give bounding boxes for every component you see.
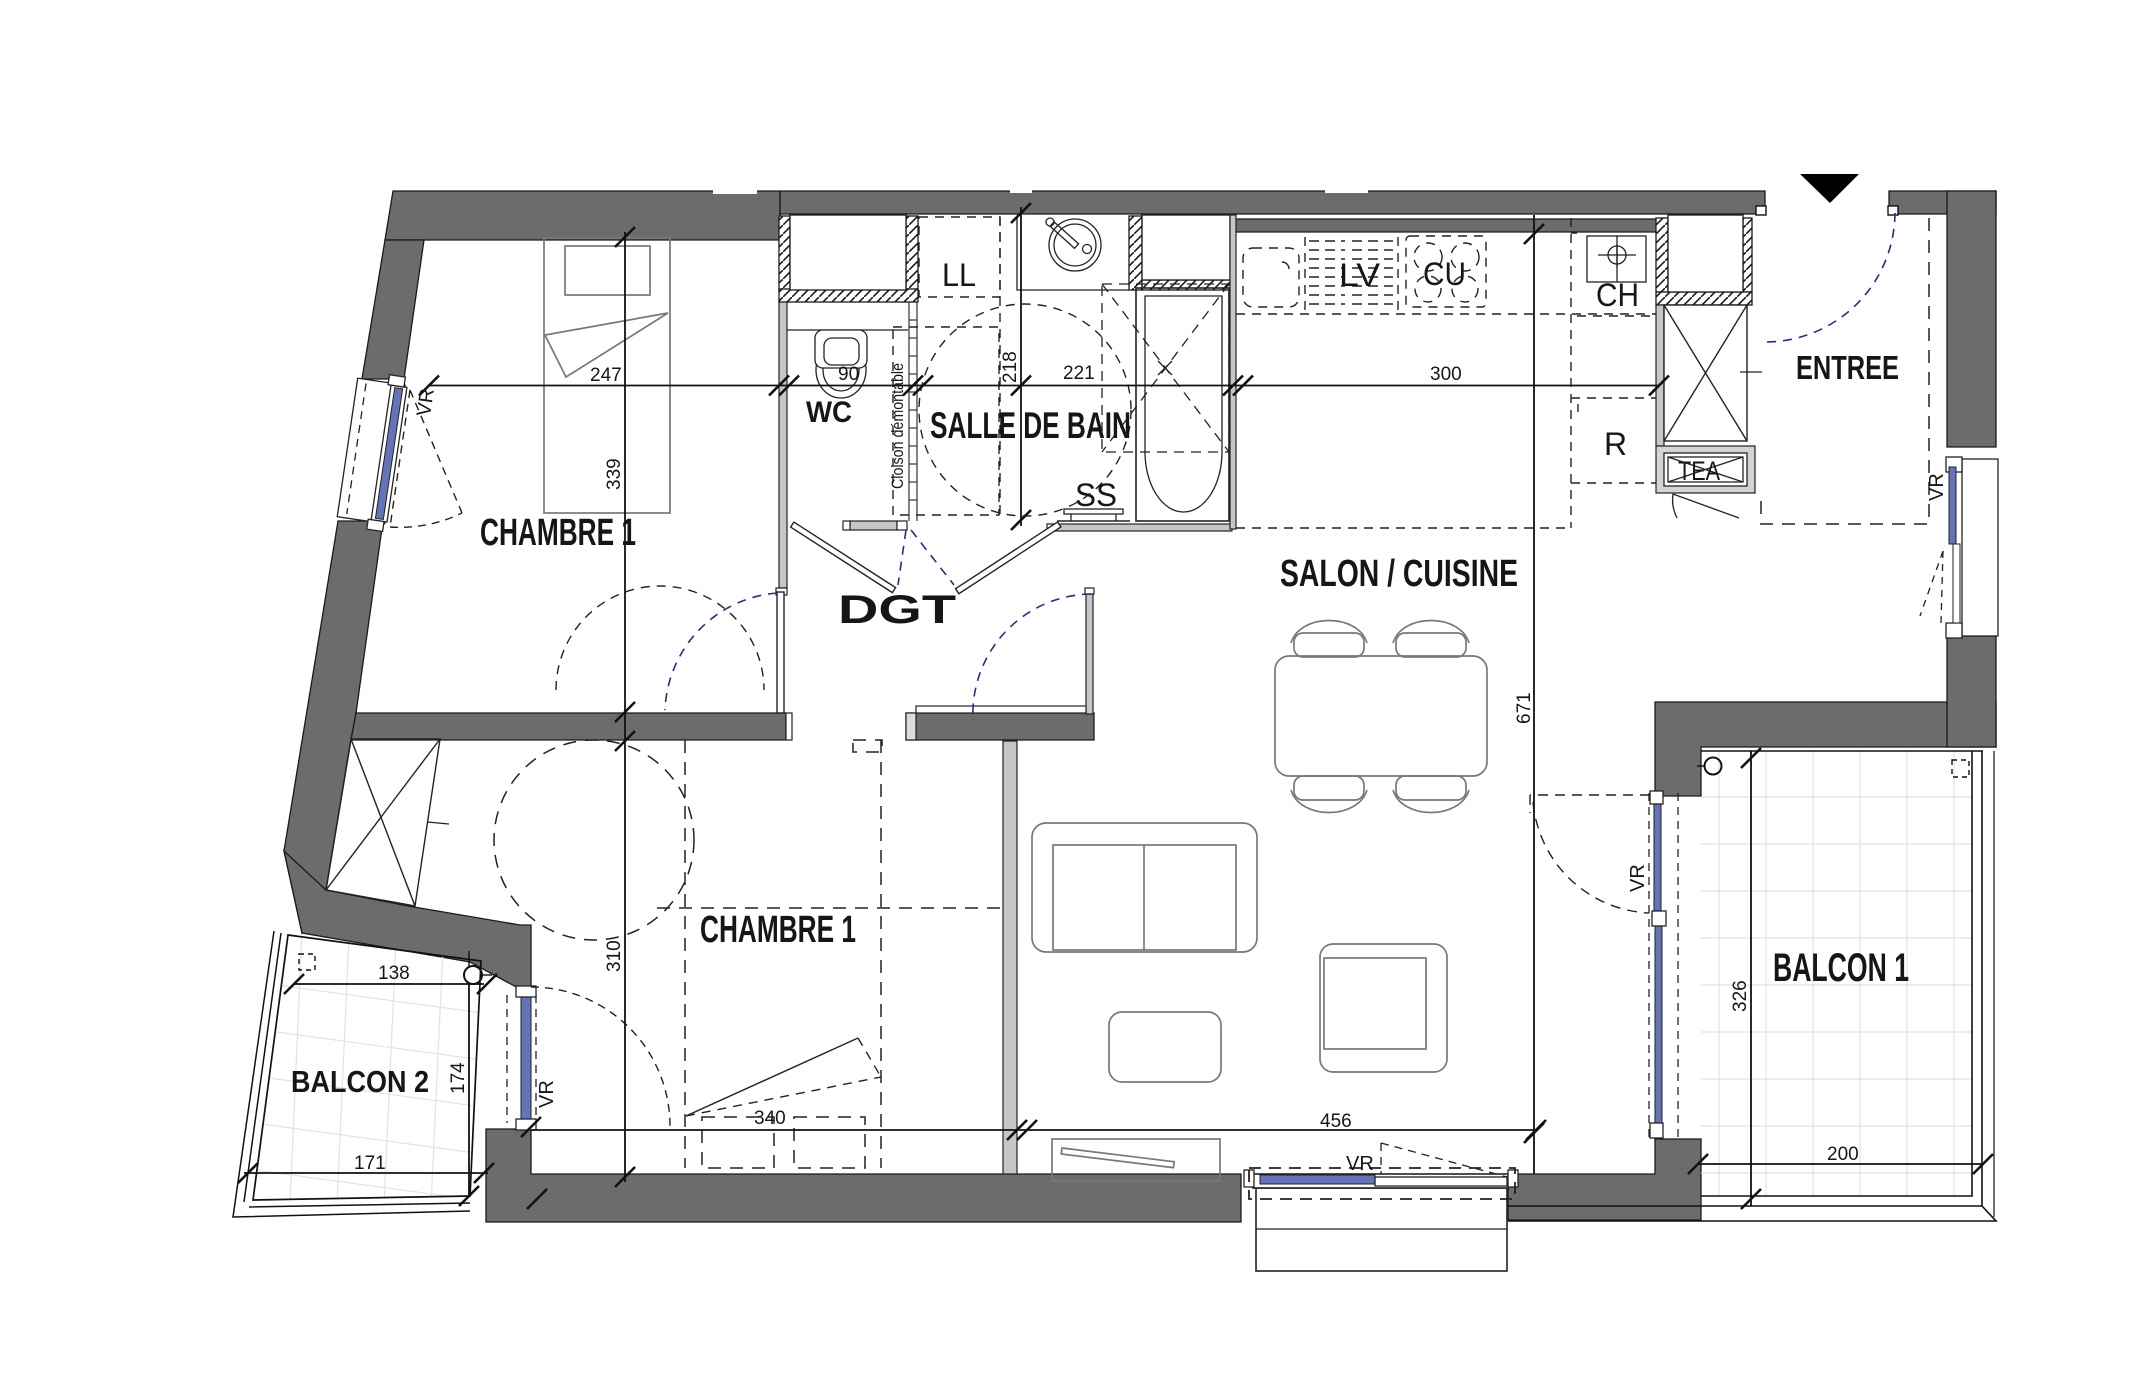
svg-text:CU: CU xyxy=(1423,256,1466,292)
svg-text:171: 171 xyxy=(354,1153,386,1174)
svg-text:LL: LL xyxy=(942,257,976,293)
svg-text:SS: SS xyxy=(1075,477,1117,513)
svg-text:340: 340 xyxy=(754,1108,786,1129)
svg-text:DGT: DGT xyxy=(838,588,956,632)
svg-text:BALCON 2: BALCON 2 xyxy=(291,1064,429,1099)
svg-text:221: 221 xyxy=(1063,363,1095,384)
svg-text:R: R xyxy=(1604,426,1627,462)
svg-text:218: 218 xyxy=(1000,351,1021,383)
svg-text:247: 247 xyxy=(590,365,622,386)
svg-text:CHAMBRE 1: CHAMBRE 1 xyxy=(480,512,636,554)
svg-text:ENTREE: ENTREE xyxy=(1796,349,1899,386)
svg-text:VR: VR xyxy=(1346,1153,1374,1175)
svg-text:VR: VR xyxy=(1926,473,1948,501)
svg-text:SALON / CUISINE: SALON / CUISINE xyxy=(1280,553,1518,595)
svg-text:300: 300 xyxy=(1430,364,1462,385)
svg-text:VR: VR xyxy=(413,387,439,418)
svg-text:326: 326 xyxy=(1730,980,1751,1012)
svg-text:CH: CH xyxy=(1596,277,1639,313)
svg-text:TEA: TEA xyxy=(1678,456,1720,486)
svg-text:Cloison démontable: Cloison démontable xyxy=(888,363,907,489)
svg-text:CHAMBRE 1: CHAMBRE 1 xyxy=(700,909,856,951)
svg-text:339: 339 xyxy=(604,458,625,490)
svg-text:VR: VR xyxy=(536,1080,558,1108)
svg-text:174: 174 xyxy=(448,1062,469,1094)
svg-text:200: 200 xyxy=(1827,1144,1859,1165)
svg-text:WC: WC xyxy=(806,396,852,429)
svg-text:VR: VR xyxy=(1627,864,1649,892)
svg-text:138: 138 xyxy=(378,963,410,984)
svg-text:BALCON 1: BALCON 1 xyxy=(1773,946,1909,990)
svg-text:90: 90 xyxy=(838,364,859,385)
svg-text:SALLE DE BAIN: SALLE DE BAIN xyxy=(930,405,1131,446)
svg-text:456: 456 xyxy=(1320,1111,1352,1132)
svg-text:671: 671 xyxy=(1514,692,1535,724)
svg-text:LV: LV xyxy=(1339,257,1381,293)
svg-text:310: 310 xyxy=(604,940,625,972)
